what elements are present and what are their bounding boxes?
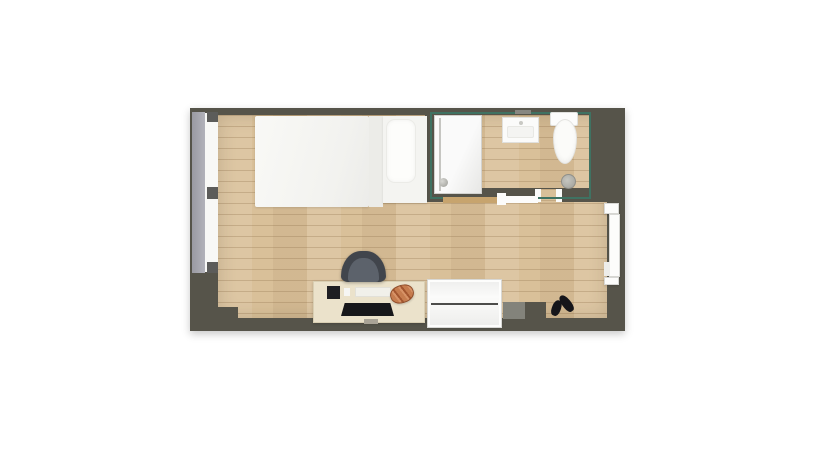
window-frame-middle: [207, 187, 218, 199]
bed-duvet[interactable]: [255, 116, 369, 207]
entry-door-jamb-bottom[interactable]: [604, 277, 619, 285]
cabinet[interactable]: [428, 280, 501, 327]
bed-pillow[interactable]: [386, 119, 416, 183]
entry-door-handle[interactable]: [604, 262, 610, 276]
keyboard[interactable]: [341, 303, 394, 316]
desk-cable-tray: [364, 319, 378, 324]
entry-door-leaf[interactable]: [609, 214, 620, 277]
entry-door-jamb-top[interactable]: [604, 203, 619, 214]
bed-duvet-fold[interactable]: [369, 116, 383, 207]
bathroom-wall-right: [591, 115, 607, 189]
wall-column: [503, 302, 526, 319]
window[interactable]: [192, 112, 205, 273]
desk-small-item[interactable]: [344, 288, 350, 296]
wall-step-right: [525, 302, 546, 319]
desk-paper[interactable]: [355, 287, 391, 297]
floor-plan-canvas: [0, 0, 835, 467]
window-frame-bottom: [207, 262, 218, 273]
floor-drain[interactable]: [561, 174, 576, 189]
window-frame-top: [207, 112, 218, 122]
sliding-door-bracket[interactable]: [497, 193, 506, 205]
sink-faucet: [515, 110, 531, 114]
shower[interactable]: [434, 115, 482, 194]
sliding-door-panel[interactable]: [443, 197, 500, 203]
tablet[interactable]: [327, 286, 340, 299]
sink[interactable]: [502, 117, 539, 143]
wall-step-left: [217, 307, 238, 319]
